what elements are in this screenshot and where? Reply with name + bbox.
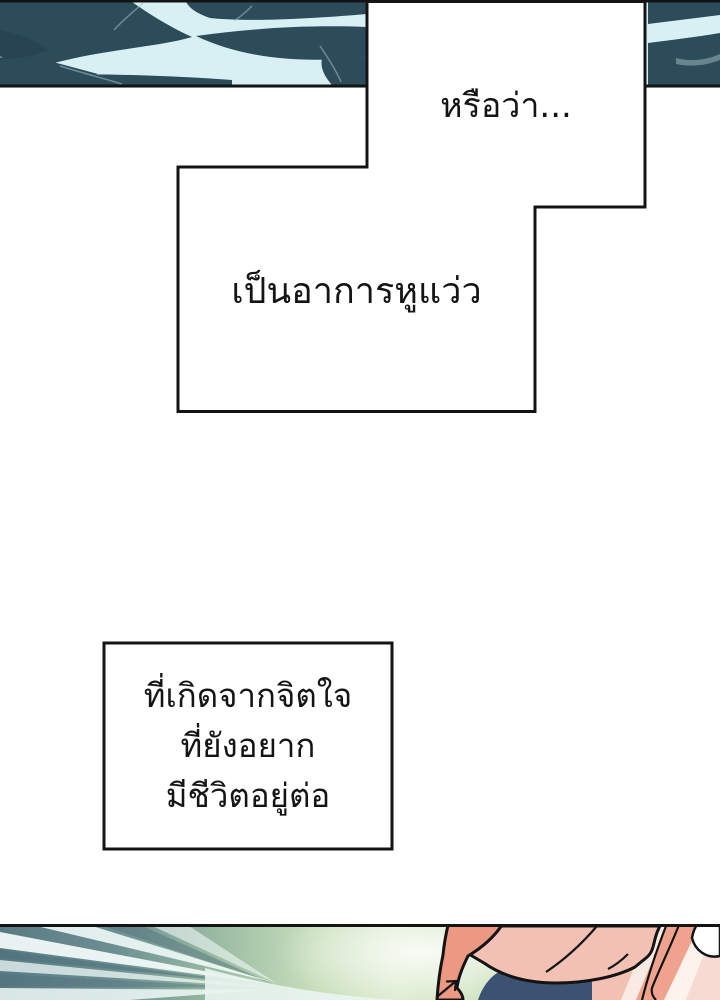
caption-3-line-2: ที่ยังอยาก bbox=[144, 721, 353, 771]
caption-3: ที่เกิดจากจิตใจ ที่ยังอยาก มีชีวิตอยู่ต่… bbox=[104, 643, 392, 849]
caption-2-text: เป็นอาการหูแว่ว bbox=[231, 262, 481, 319]
caption-3-line-1: ที่เกิดจากจิตใจ bbox=[144, 671, 353, 721]
bottom-panel-border-top bbox=[0, 924, 720, 927]
caption-3-lines: ที่เกิดจากจิตใจ ที่ยังอยาก มีชีวิตอยู่ต่… bbox=[144, 671, 353, 821]
caption-1-text: หรือว่า... bbox=[440, 78, 572, 132]
comic-page: หรือว่า... เป็นอาการหูแว่ว ที่เกิดจากจิต… bbox=[0, 0, 720, 1000]
caption-3-line-3: มีชีวิตอยู่ต่อ bbox=[144, 771, 353, 821]
caption-2: เป็นอาการหูแว่ว bbox=[179, 168, 534, 412]
bottom-scene-panel bbox=[0, 897, 720, 1000]
